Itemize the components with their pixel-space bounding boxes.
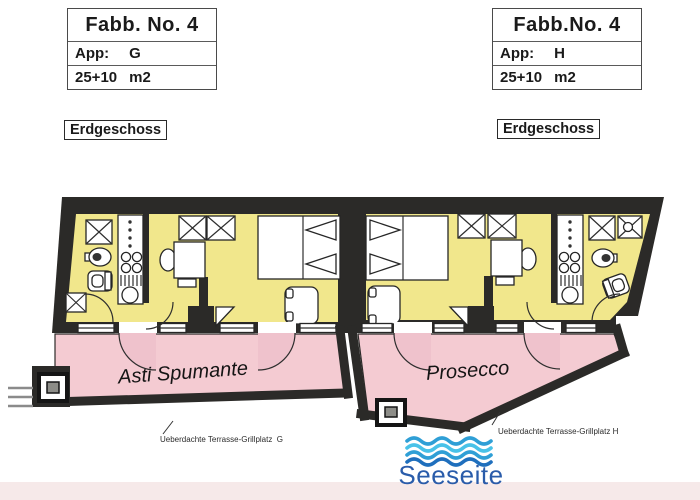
apartment-label: App: bbox=[75, 45, 109, 62]
kitchen-counter bbox=[118, 215, 143, 304]
lakeside-label: Seeseite bbox=[392, 460, 510, 491]
area-value: 25+10 bbox=[75, 69, 117, 86]
room-partition bbox=[199, 277, 208, 307]
double-bed bbox=[366, 216, 448, 280]
apartment-label: App: bbox=[500, 45, 534, 62]
caption-leader-line bbox=[163, 421, 173, 434]
apartment-g bbox=[52, 197, 352, 333]
info-card-apartment-h: Fabb.No. 4 App: H 25+10 m2 bbox=[492, 8, 642, 90]
kitchen-partition bbox=[143, 214, 149, 303]
area-value: 25+10 bbox=[500, 69, 542, 86]
apartment-value: G bbox=[129, 45, 141, 62]
stove-icon bbox=[86, 220, 112, 244]
sink-unit-icon bbox=[618, 216, 642, 238]
info-card-apartment-g: Fabb. No. 4 App: G 25+10 m2 bbox=[67, 8, 217, 90]
floor-label-left: Erdgeschoss bbox=[64, 120, 167, 140]
area-unit: m2 bbox=[554, 69, 576, 86]
area-unit: m2 bbox=[129, 69, 151, 86]
wardrobe bbox=[179, 216, 235, 240]
room-partition bbox=[484, 276, 493, 307]
building-title: Fabb. No. 4 bbox=[68, 9, 216, 41]
toilet-icon bbox=[88, 271, 112, 291]
shower-icon bbox=[66, 293, 86, 312]
apartment-row: App: H bbox=[493, 41, 641, 65]
wall-pillar bbox=[468, 306, 494, 331]
jetty-steps bbox=[8, 388, 33, 406]
area-row: 25+10 m2 bbox=[493, 65, 641, 89]
stove-icon bbox=[589, 216, 615, 240]
floor-label-right: Erdgeschoss bbox=[497, 119, 600, 139]
terrace-caption-g: Ueberdachte Terrasse-Grillplatz G bbox=[160, 435, 283, 444]
bench bbox=[368, 286, 400, 324]
bench bbox=[285, 287, 318, 324]
grill-icon bbox=[377, 400, 405, 425]
grill-icon bbox=[39, 374, 67, 401]
terrace-caption-h: Ueberdachte Terrasse-Grillplatz H bbox=[498, 427, 618, 436]
wall-pillar bbox=[188, 306, 214, 331]
double-bed bbox=[258, 216, 340, 279]
kitchen-partition bbox=[551, 214, 557, 303]
kitchen-counter bbox=[557, 215, 583, 304]
apartment-row: App: G bbox=[68, 41, 216, 65]
building-title: Fabb.No. 4 bbox=[493, 9, 641, 41]
apartment-h bbox=[352, 197, 664, 333]
floorplan-page: Fabb. No. 4 App: G 25+10 m2 Fabb.No. 4 A… bbox=[0, 0, 700, 500]
apartment-value: H bbox=[554, 45, 565, 62]
area-row: 25+10 m2 bbox=[68, 65, 216, 89]
